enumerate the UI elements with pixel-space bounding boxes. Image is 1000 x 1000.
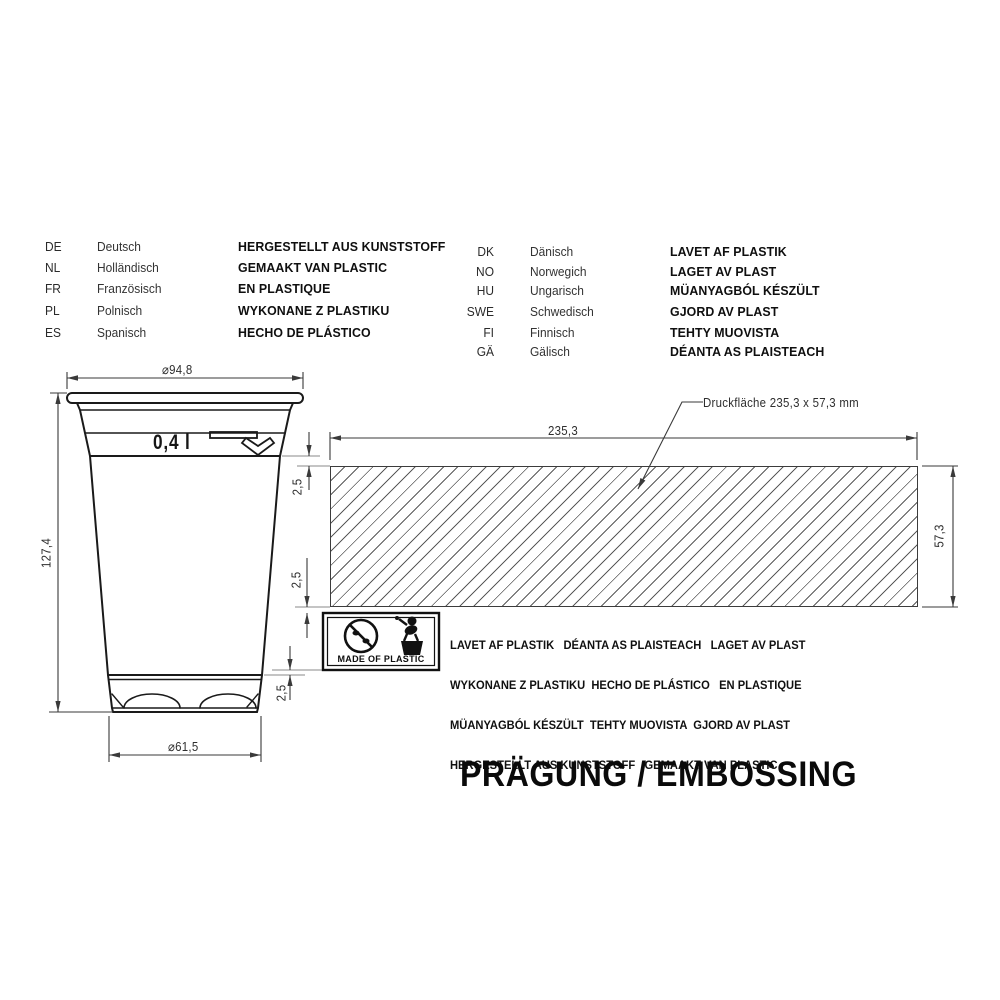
dim-top-diameter: ⌀94,8 — [162, 362, 192, 378]
print-area-callout: Druckfläche 235,3 x 57,3 mm — [703, 395, 859, 410]
embossing-drawing-sheet: DE Deutsch HERGESTELLT AUS KUNSTSTOFF NL… — [0, 0, 1000, 1000]
dim-print-width: 235,3 — [548, 423, 578, 438]
dim-height: 127,4 — [39, 538, 54, 568]
tidyman-icon — [395, 616, 423, 655]
page-title: PRÄGUNG / EMBOSSING — [460, 755, 857, 795]
made-of-plastic-label: MADE OF PLASTIC — [323, 654, 439, 664]
embossing-line: WYKONANE Z PLASTIKU HECHO DE PLÁSTICO EN… — [450, 679, 805, 692]
cup-volume-label: 0,4 l — [153, 431, 191, 455]
dim-print-height: 57,3 — [932, 524, 947, 547]
fill-line-arrow-icon — [210, 432, 274, 455]
dim-offset-bottom: 2,5 — [274, 685, 289, 702]
prohibition-icon — [345, 620, 377, 652]
dim-offset-middle: 2,5 — [289, 572, 304, 589]
embossing-line: MÜANYAGBÓL KÉSZÜLT TEHTY MUOVISTA GJORD … — [450, 719, 805, 732]
embossing-line: LAVET AF PLASTIK DÉANTA AS PLAISTEACH LA… — [450, 639, 805, 652]
dim-offset-top: 2,5 — [290, 479, 305, 496]
drawing-linework — [0, 0, 1000, 1000]
dim-bottom-diameter: ⌀61,5 — [168, 739, 198, 755]
